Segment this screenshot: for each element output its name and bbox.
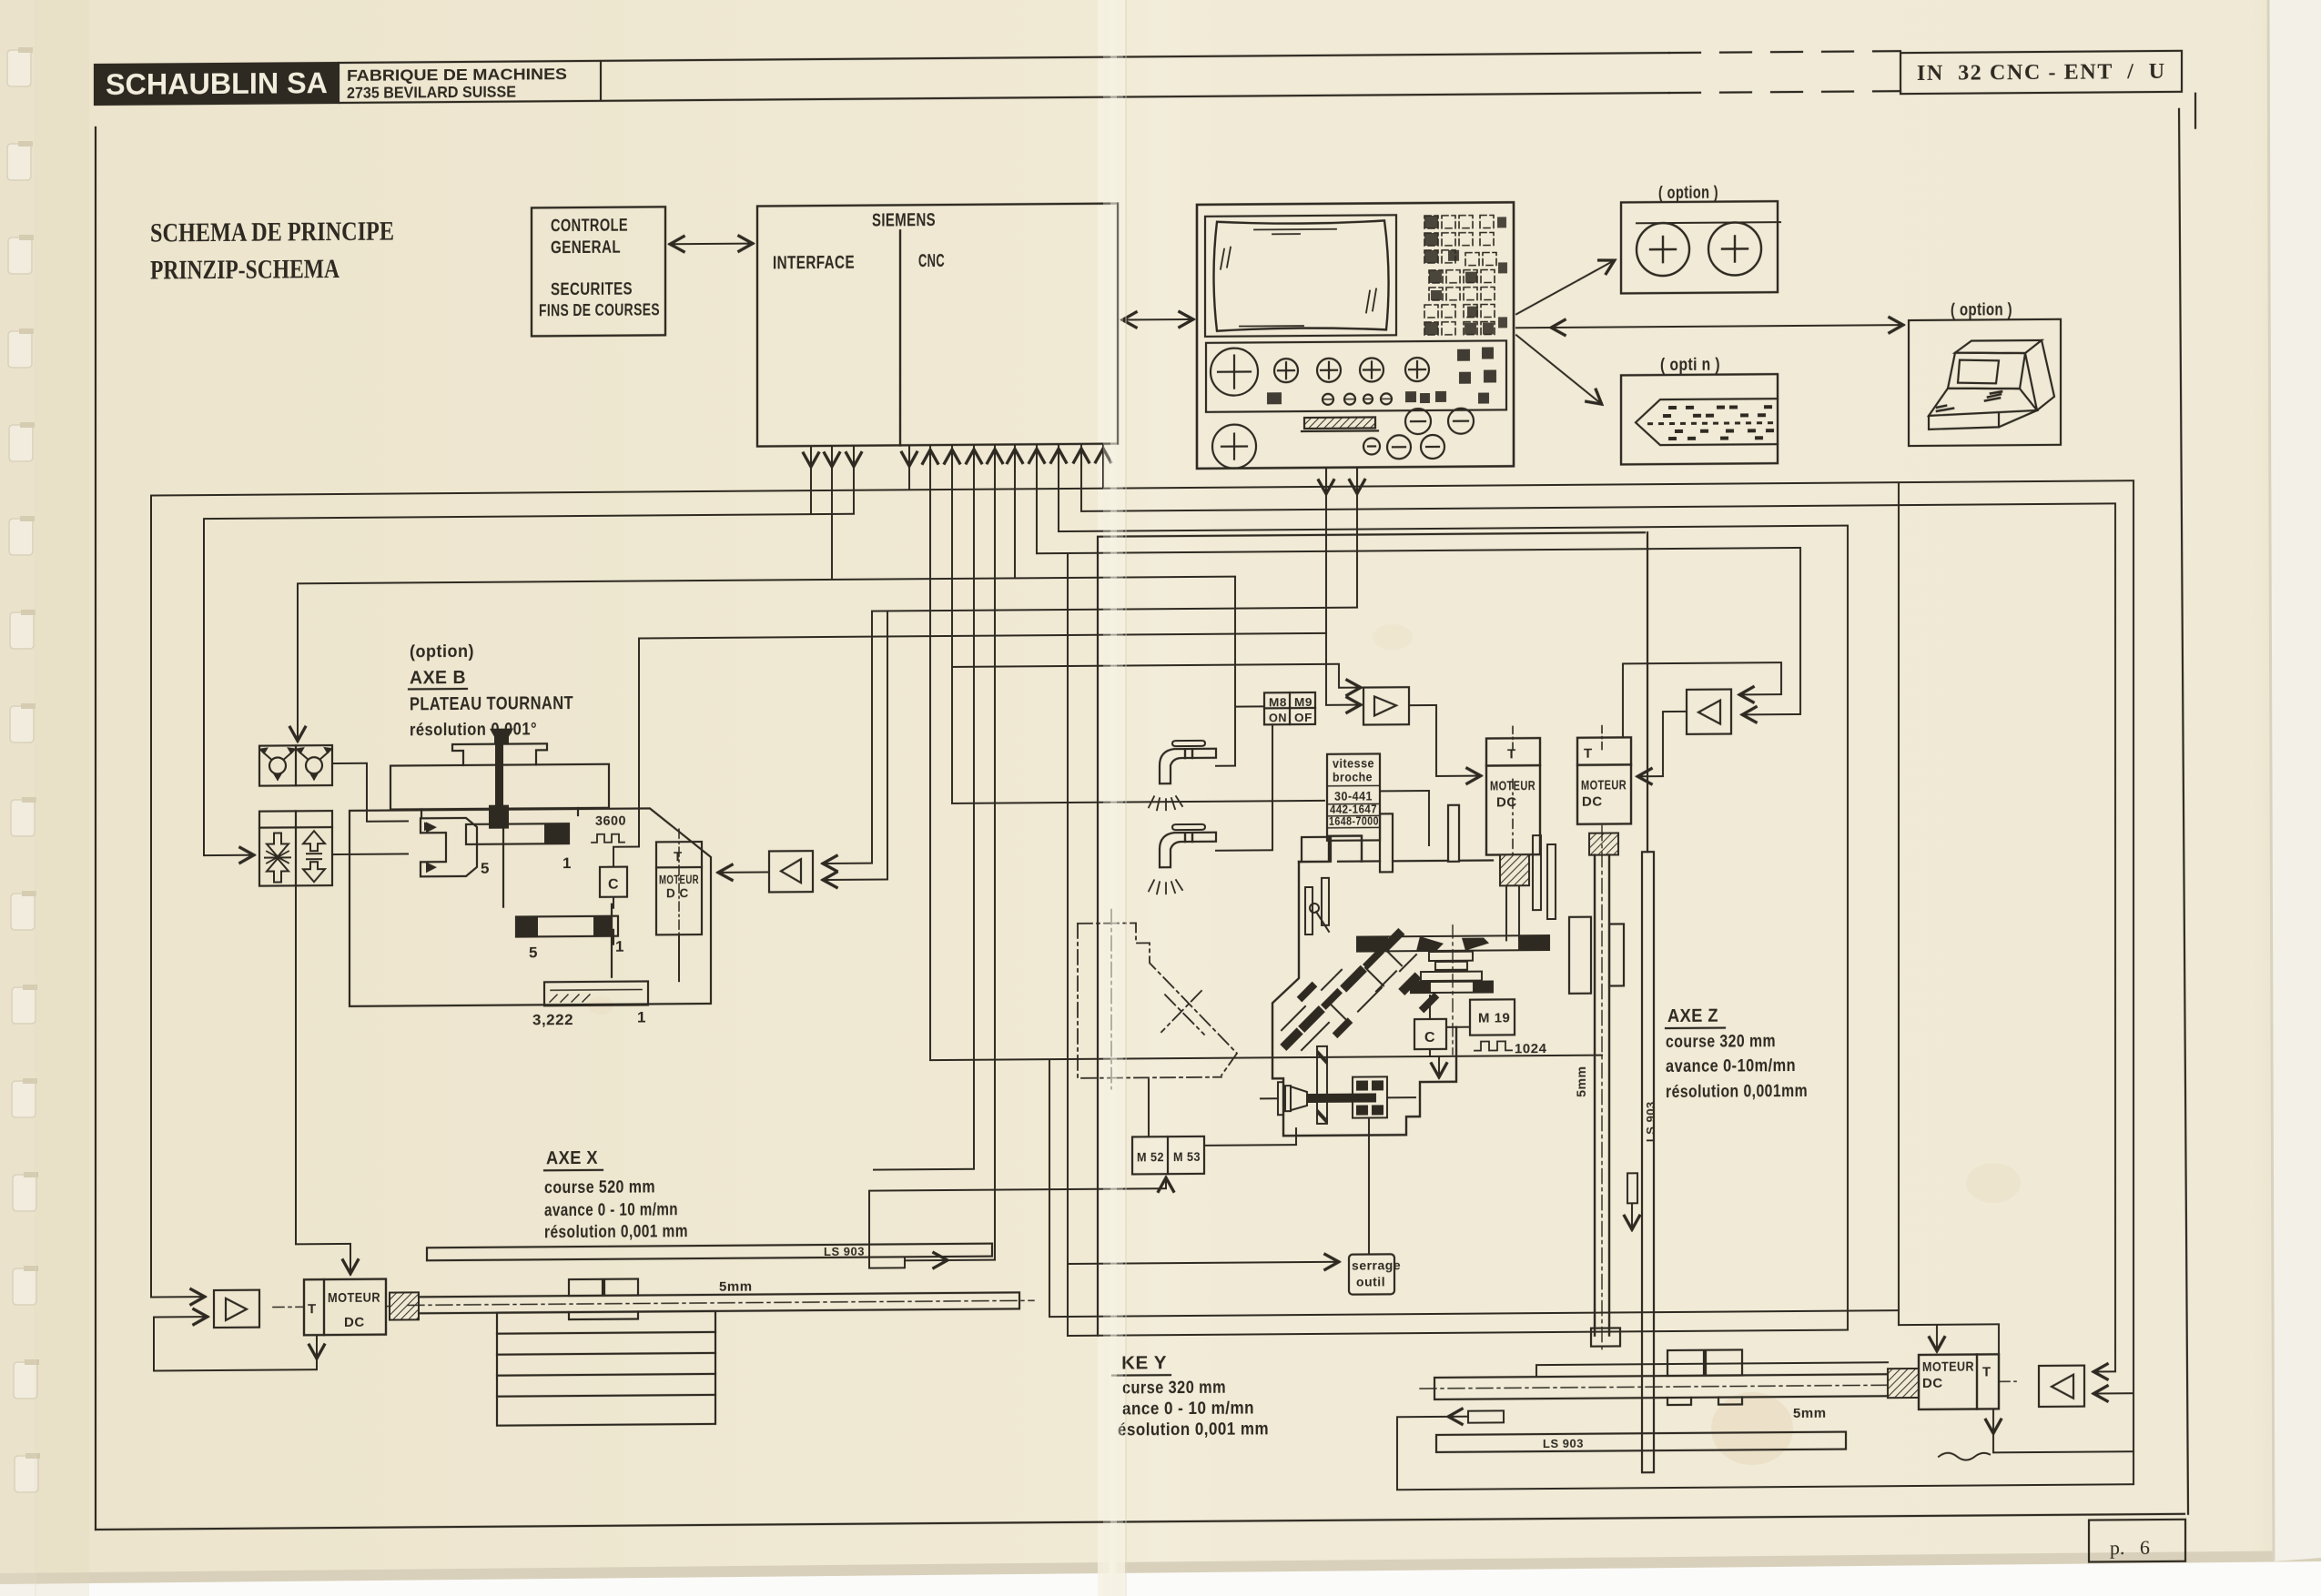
svg-text:5mm: 5mm xyxy=(1793,1406,1827,1421)
svg-text:PRINZIP-SCHEMA: PRINZIP-SCHEMA xyxy=(150,254,340,286)
svg-text:ON: ON xyxy=(1269,711,1287,724)
svg-text:M 53: M 53 xyxy=(1173,1149,1201,1164)
svg-text:MOTEUR: MOTEUR xyxy=(1490,778,1536,793)
svg-text:MOTEUR: MOTEUR xyxy=(328,1290,380,1306)
svg-text:( opti n ): ( opti n ) xyxy=(1660,356,1720,375)
svg-text:CONTROLE: CONTROLE xyxy=(551,217,628,237)
svg-text:SCHAUBLIN SA: SCHAUBLIN SA xyxy=(106,66,328,101)
svg-text:résolution 0,001°: résolution 0,001° xyxy=(410,720,537,740)
svg-text:AXE B: AXE B xyxy=(410,668,466,688)
svg-text:outil: outil xyxy=(1356,1274,1385,1288)
svg-text:vitesse: vitesse xyxy=(1333,755,1374,770)
svg-text:p. 6: p. 6 xyxy=(2110,1536,2150,1559)
svg-text:LS 903: LS 903 xyxy=(1543,1437,1584,1450)
svg-text:T: T xyxy=(1982,1364,1992,1379)
svg-text:broche: broche xyxy=(1333,769,1373,783)
svg-text:OF: OF xyxy=(1294,711,1313,724)
svg-text:PLATEAU TOURNANT: PLATEAU TOURNANT xyxy=(410,693,573,714)
svg-text:( option ): ( option ) xyxy=(1951,300,2012,320)
svg-text:GENERAL: GENERAL xyxy=(551,238,621,258)
svg-text:LS 903: LS 903 xyxy=(1644,1101,1657,1142)
svg-text:SIEMENS: SIEMENS xyxy=(872,210,936,231)
svg-text:DC: DC xyxy=(344,1315,365,1330)
svg-text:( option ): ( option ) xyxy=(1658,184,1718,203)
svg-text:(option): (option) xyxy=(410,642,474,662)
svg-text:course 320 mm: course 320 mm xyxy=(1666,1032,1776,1052)
svg-text:T: T xyxy=(308,1301,317,1317)
svg-text:FABRIQUE DE MACHINES: FABRIQUE DE MACHINES xyxy=(347,65,567,85)
svg-text:serrage: serrage xyxy=(1352,1258,1401,1272)
svg-text:MOTEUR: MOTEUR xyxy=(659,873,699,886)
svg-text:avance 0-10m/mn: avance 0-10m/mn xyxy=(1666,1056,1796,1076)
svg-text:M9: M9 xyxy=(1294,695,1313,709)
svg-text:CNC: CNC xyxy=(918,251,945,271)
svg-text:3600: 3600 xyxy=(595,813,626,829)
svg-text:5mm: 5mm xyxy=(1574,1066,1588,1097)
svg-text:MOTEUR: MOTEUR xyxy=(1581,777,1627,793)
svg-text:AXE X: AXE X xyxy=(546,1148,598,1168)
svg-text:5mm: 5mm xyxy=(719,1279,753,1295)
svg-text:M 52: M 52 xyxy=(1137,1149,1164,1164)
svg-text:LS 903: LS 903 xyxy=(824,1245,865,1258)
svg-text:FINS DE COURSES: FINS DE COURSES xyxy=(539,300,660,319)
svg-text:curse 320 mm: curse 320 mm xyxy=(1122,1379,1226,1399)
svg-text:ance 0 - 10 m/mn: ance 0 - 10 m/mn xyxy=(1122,1399,1254,1419)
svg-text:5: 5 xyxy=(481,860,490,877)
svg-text:résolution 0,001 mm: résolution 0,001 mm xyxy=(544,1222,688,1242)
svg-text:avance 0 - 10 m/mn: avance 0 - 10 m/mn xyxy=(544,1200,678,1220)
svg-text:C: C xyxy=(1424,1030,1435,1045)
svg-text:30-441: 30-441 xyxy=(1334,789,1373,803)
svg-text:5: 5 xyxy=(529,944,538,961)
svg-text:1024: 1024 xyxy=(1515,1041,1547,1056)
svg-text:course 520 mm: course 520 mm xyxy=(544,1177,655,1197)
svg-text:IN 32 CNC - ENT / U: IN 32 CNC - ENT / U xyxy=(1917,60,2164,86)
svg-text:SCHEMA DE PRINCIPE: SCHEMA DE PRINCIPE xyxy=(150,217,394,248)
svg-text:3,222: 3,222 xyxy=(532,1011,573,1028)
svg-text:MOTEUR: MOTEUR xyxy=(1922,1359,1974,1375)
svg-text:C: C xyxy=(608,877,619,893)
svg-text:résolution 0,001mm: résolution 0,001mm xyxy=(1666,1082,1808,1102)
svg-text:1: 1 xyxy=(637,1008,646,1025)
svg-text:INTERFACE: INTERFACE xyxy=(773,253,855,274)
svg-text:T: T xyxy=(1507,746,1516,762)
svg-text:AXE Z: AXE Z xyxy=(1667,1006,1718,1026)
svg-text:SECURITES: SECURITES xyxy=(551,280,633,300)
svg-text:D C: D C xyxy=(666,886,689,900)
svg-text:KE Y: KE Y xyxy=(1121,1353,1167,1373)
svg-text:M 19: M 19 xyxy=(1478,1010,1510,1025)
svg-text:DC: DC xyxy=(1582,794,1603,810)
svg-text:DC: DC xyxy=(1922,1376,1943,1391)
svg-text:2735 BEVILARD SUISSE: 2735 BEVILARD SUISSE xyxy=(347,83,516,102)
svg-text:ésolution 0,001 mm: ésolution 0,001 mm xyxy=(1118,1419,1269,1439)
svg-text:DC: DC xyxy=(1496,794,1517,810)
svg-text:M8: M8 xyxy=(1269,695,1287,709)
svg-text:T: T xyxy=(1584,746,1593,762)
svg-text:1: 1 xyxy=(615,938,624,955)
svg-text:T: T xyxy=(674,849,683,864)
svg-text:1648-7000: 1648-7000 xyxy=(1329,814,1379,827)
svg-text:1: 1 xyxy=(563,854,572,872)
